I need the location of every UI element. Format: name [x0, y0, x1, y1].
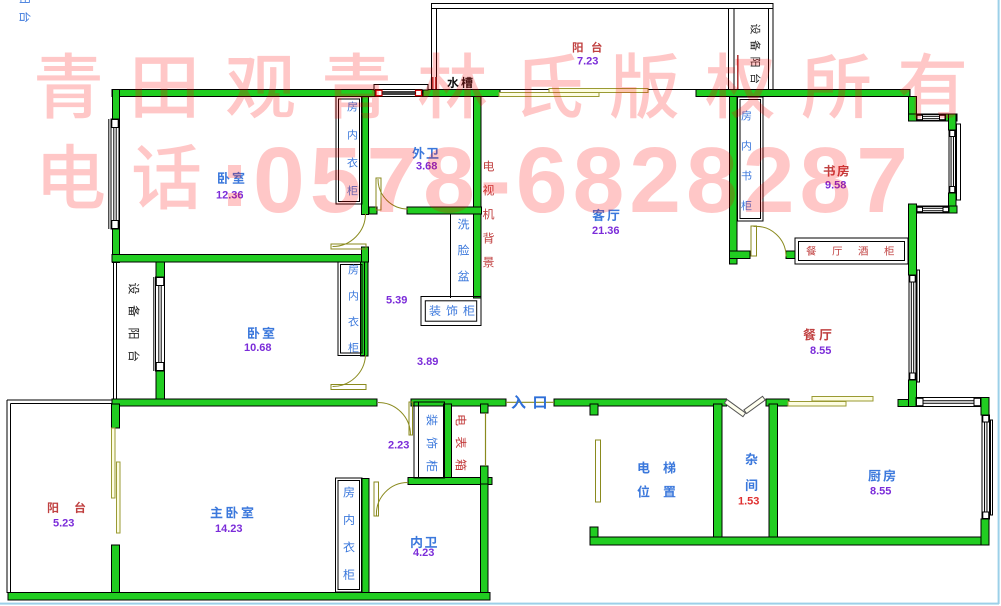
svg-text:3.89: 3.89: [417, 356, 438, 368]
svg-text:0578-6828287: 0578-6828287: [253, 128, 913, 232]
svg-text:4.23: 4.23: [413, 547, 434, 559]
svg-text:14.23: 14.23: [215, 523, 243, 535]
svg-text:1.53: 1.53: [738, 496, 759, 508]
svg-text:10.68: 10.68: [244, 342, 272, 354]
svg-text:7.23: 7.23: [577, 56, 598, 68]
svg-text:5.23: 5.23: [53, 518, 74, 530]
svg-text:5.39: 5.39: [386, 295, 407, 307]
svg-text:8.55: 8.55: [870, 486, 891, 498]
svg-text:2.23: 2.23: [388, 440, 409, 452]
svg-text:8.55: 8.55: [810, 345, 831, 357]
